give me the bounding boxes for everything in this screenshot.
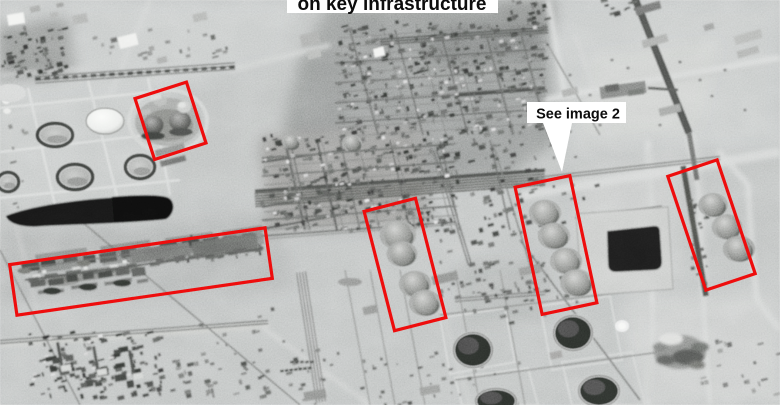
svg-text:on key infrastructure: on key infrastructure: [298, 0, 487, 15]
svg-text:See image 2: See image 2: [536, 107, 620, 123]
